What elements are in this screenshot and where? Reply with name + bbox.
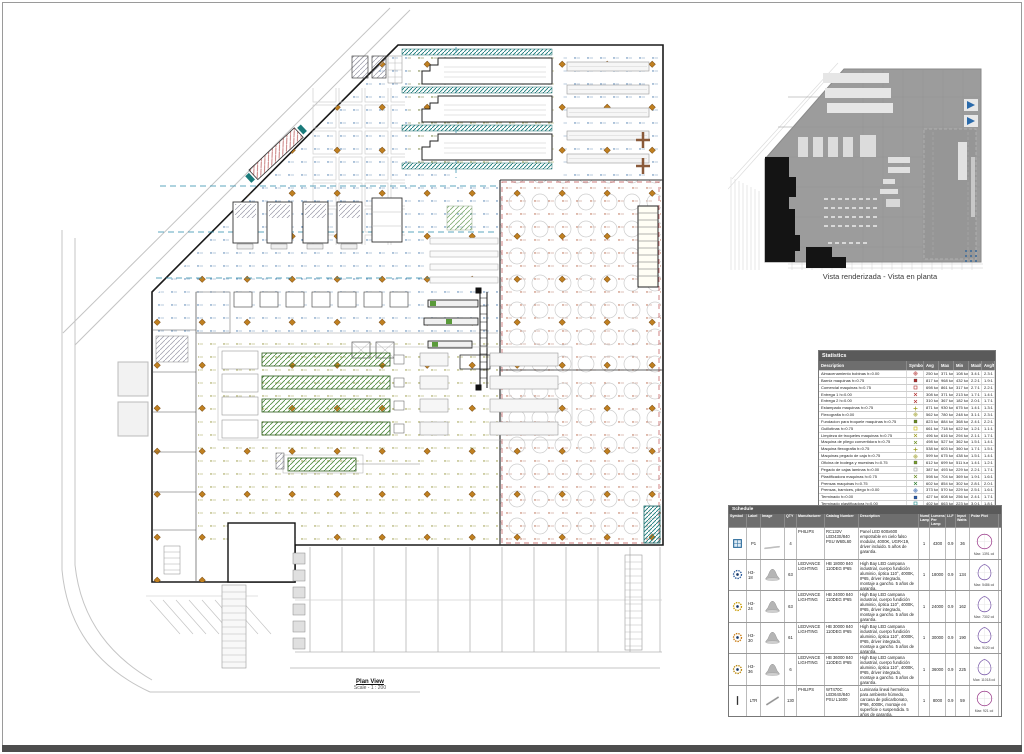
circle-cross-symbol-icon	[913, 371, 918, 376]
polar-plot	[974, 594, 995, 615]
polar-max-label: Max: 921 cd	[975, 709, 993, 713]
stat-description: Prensas maquinas h=0.75	[819, 481, 907, 487]
luminaire-image	[761, 591, 785, 622]
schedule-rows: P14PHILIPSRC132V LED43S/840 PSU W60L60Pa…	[729, 527, 1001, 716]
statistics-row: Fundacion para troquele maquinas h=0.758…	[819, 418, 995, 425]
render-storage-zone	[924, 129, 976, 259]
luminaire-manufacturer: PHILIPS	[797, 686, 825, 717]
stat-avg: 661 lux	[924, 426, 939, 432]
stat-avgmin: 1.9:1	[982, 378, 995, 384]
luminaire-llf: 0.9	[946, 528, 956, 559]
stat-avg: 538 lux	[924, 446, 939, 452]
stat-min: 622 lux	[954, 426, 969, 432]
luminaire-description: Panel LED 600x600 empotrable en cielo fa…	[859, 528, 919, 559]
luminaire-schedule-table: Schedule SymbolLabelImageQTYManufacturer…	[728, 505, 1002, 717]
luminaire-qty: 6	[785, 654, 797, 685]
stat-avg: 498 lux	[924, 439, 939, 445]
stat-max: 930 lux	[939, 405, 954, 411]
schedule-header-cell: Input Watts	[956, 514, 970, 527]
luminaire-watts: 36	[956, 528, 970, 559]
stat-avgmin: 1.4:1	[982, 392, 995, 398]
luminaire-lamps: 1	[919, 591, 930, 622]
circle-dot-symbol-icon	[732, 569, 743, 580]
schedule-row: H3-3061LEDVANCE LIGHTINGHB 30000 840 110…	[729, 622, 1001, 654]
stat-avgmin: 1.7:1	[982, 494, 995, 500]
stat-description: Terminado h=0.00	[819, 494, 907, 500]
stat-min: 438 lux	[954, 453, 969, 459]
stat-min: 182 lux	[954, 398, 969, 404]
luminaire-lamps: 1	[919, 654, 930, 685]
strip-image	[762, 693, 783, 708]
x-symbol-icon	[913, 481, 918, 486]
circle-dot-symbol-icon	[732, 664, 743, 675]
stat-symbol	[907, 494, 924, 500]
polar-plot	[974, 625, 995, 646]
luminaire-watts: 225	[956, 654, 970, 685]
luminaire-catalog: HB 36000 840 110DEG IP65	[825, 654, 859, 685]
luminaire-symbol	[729, 623, 747, 654]
stat-max: 968 lux	[939, 378, 954, 384]
statistics-row: Barniz maquinas h=0.75817 lux968 lux432 …	[819, 377, 995, 384]
luminaire-image	[761, 560, 785, 591]
stat-avgmin: 1.6:1	[982, 487, 995, 493]
luminaire-label: H3-30	[747, 623, 761, 654]
luminaire-llf: 0.9	[946, 623, 956, 654]
luminaire-manufacturer: LEDVANCE LIGHTING	[797, 591, 825, 622]
stat-avg: 698 lux	[924, 385, 939, 391]
square-symbol-icon	[913, 378, 918, 383]
circle-cross-symbol-icon	[913, 412, 918, 417]
luminaire-manufacturer: LEDVANCE LIGHTING	[797, 560, 825, 591]
stat-symbol	[907, 412, 924, 418]
luminaire-symbol	[729, 528, 747, 559]
luminaire-qty: 61	[785, 623, 797, 654]
plus-symbol-icon	[913, 447, 918, 452]
luminaire-catalog: HB 18000 840 110DEG IP65	[825, 560, 859, 591]
luminaire-description: High Bay LED campana industrial, cuerpo …	[859, 560, 919, 591]
luminaire-manufacturer: LEDVANCE LIGHTING	[797, 654, 825, 685]
luminaire-lamps: 1	[919, 560, 930, 591]
stat-avgmin: 1.6:1	[982, 474, 995, 480]
schedule-header-cell: LLF	[946, 514, 956, 527]
circle-dot-symbol-icon	[732, 601, 743, 612]
stat-maxmin: 1.7:1	[969, 446, 982, 452]
stat-avg: 602 lux	[924, 481, 939, 487]
luminaire-qty: 130	[785, 686, 797, 717]
stat-min: 229 lux	[954, 487, 969, 493]
stat-min: 229 lux	[954, 467, 969, 473]
stat-max: 854 lux	[939, 481, 954, 487]
luminaire-lamps: 1	[919, 623, 930, 654]
stat-min: 360 lux	[954, 446, 969, 452]
stat-max: 675 lux	[939, 453, 954, 459]
luminaire-image	[761, 686, 785, 717]
luminaire-symbol	[729, 560, 747, 591]
statistics-header-cell: Max	[939, 361, 954, 370]
stat-avgmin: 1.5:1	[982, 446, 995, 452]
panel-symbol-icon	[732, 538, 743, 549]
statistics-row: Almacenamiento bobinas h=0.00250 lux371 …	[819, 370, 995, 377]
stat-min: 675 lux	[954, 405, 969, 411]
luminaire-qty: 63	[785, 560, 797, 591]
stat-description: Maquina flexografia h=0.75	[819, 446, 907, 452]
stat-max: 570 lux	[939, 487, 954, 493]
square-symbol-icon	[913, 460, 918, 465]
stat-avg: 387 lux	[924, 467, 939, 473]
luminaire-lumens: 24000	[930, 591, 946, 622]
statistics-row: Entrega 1 h=0.00308 lux371 lux213 lux1.7…	[819, 391, 995, 398]
stat-maxmin: 2.1:1	[969, 433, 982, 439]
stat-description: Flexografia h=0.00	[819, 412, 907, 418]
luminaire-label: H3-18	[747, 560, 761, 591]
stat-symbol	[907, 426, 924, 432]
bar-symbol-icon	[732, 695, 743, 706]
stat-max: 371 lux	[939, 392, 954, 398]
highbay-image	[762, 567, 783, 582]
schedule-header-cell: Symbol	[729, 514, 747, 527]
luminaire-image	[761, 654, 785, 685]
luminaire-catalog: WT470C LED64S/840 PSU L1600	[825, 686, 859, 717]
schedule-header-cell: Polar Plot	[970, 514, 999, 527]
stat-maxmin: 1.5:1	[969, 453, 982, 459]
stat-avg: 871 lux	[924, 405, 939, 411]
stat-description: Barniz maquinas h=0.75	[819, 378, 907, 384]
plan-scale: Scale - 1 : 200	[300, 685, 440, 691]
loading-dock	[295, 547, 662, 652]
statistics-row: Estampado maquinas h=0.75871 lux930 lux6…	[819, 404, 995, 411]
statistics-row: Plastificadora maquinas h=0.75598 lux704…	[819, 473, 995, 480]
stat-max: 884 lux	[939, 419, 954, 425]
square-symbol-icon	[913, 495, 918, 500]
stat-avgmin: 1.4:1	[982, 453, 995, 459]
polar-max-label: Max: 5486 cd	[974, 583, 994, 587]
circle-cross-symbol-icon	[913, 488, 918, 493]
stat-maxmin: 1.2:1	[969, 426, 982, 432]
stat-max: 367 lux	[939, 398, 954, 404]
schedule-header-cell: Label	[747, 514, 761, 527]
luminaire-image	[761, 623, 785, 654]
stat-avgmin: 1.7:1	[982, 398, 995, 404]
stat-avg: 427 lux	[924, 494, 939, 500]
x-symbol-icon	[913, 392, 918, 397]
luminaire-polar: Max: 7302 cd	[970, 591, 999, 622]
luminaire-polar: Max: 921 cd	[970, 686, 999, 717]
stat-max: 493 lux	[939, 467, 954, 473]
stat-avg: 562 lux	[924, 412, 939, 418]
luminaire-polar: Max: 9120 cd	[970, 623, 999, 654]
x-symbol-icon	[913, 440, 918, 445]
stat-maxmin: 1.5:1	[969, 439, 982, 445]
stat-avgmin: 1.7:1	[982, 467, 995, 473]
luminaire-watts: 162	[956, 591, 970, 622]
stat-symbol	[907, 481, 924, 487]
stat-max: 699 lux	[939, 460, 954, 466]
mid-left-machines	[233, 198, 402, 249]
stat-avgmin: 1.7:1	[982, 433, 995, 439]
luminaire-label: LTR	[747, 686, 761, 717]
stat-symbol	[907, 433, 924, 439]
stat-min: 294 lux	[954, 433, 969, 439]
luminaire-image	[761, 528, 785, 559]
luminaire-qty: 63	[785, 591, 797, 622]
panel-image	[762, 536, 783, 551]
polar-plot	[974, 562, 995, 583]
statistics-row: Limpieza de troqueles maquinas h=0.75496…	[819, 432, 995, 439]
highbay-image	[762, 630, 783, 645]
schedule-row: H3-1863LEDVANCE LIGHTINGHB 18000 840 110…	[729, 559, 1001, 591]
plan-title-block: Plan View Scale - 1 : 200	[300, 679, 440, 691]
stat-description: Prensas, barnices, pliego h=0.00	[819, 487, 907, 493]
square-open-symbol-icon	[913, 426, 918, 431]
stat-max: 371 lux	[939, 371, 954, 377]
plus-symbol-icon	[913, 406, 918, 411]
rendered-view-caption: Vista renderizada - Vista en planta	[785, 272, 975, 281]
schedule-header: SymbolLabelImageQTYManufacturerCatalog N…	[729, 514, 1001, 527]
schedule-title: Schedule	[729, 506, 1001, 514]
stat-maxmin: 2.8:1	[969, 481, 982, 487]
stat-avg: 817 lux	[924, 378, 939, 384]
stat-avg: 373 lux	[924, 487, 939, 493]
schedule-header-cell: Number Lamps	[919, 514, 930, 527]
stat-symbol	[907, 446, 924, 452]
stat-maxmin: 2.4:1	[969, 494, 982, 500]
luminaire-catalog: HB 24000 840 110DEG IP65	[825, 591, 859, 622]
luminaire-polar: Max: 5486 cd	[970, 560, 999, 591]
statistics-row: Maquinas pegado de caja h=0.75599 lux675…	[819, 452, 995, 459]
x-symbol-icon	[913, 399, 918, 404]
stat-min: 256 lux	[954, 494, 969, 500]
rendered-view	[728, 57, 986, 270]
stat-description: Almacenamiento bobinas h=0.00	[819, 371, 907, 377]
stat-symbol	[907, 467, 924, 473]
luminaire-lumens: 4300	[930, 528, 946, 559]
square-open-symbol-icon	[913, 467, 918, 472]
stat-maxmin: 2.7:1	[969, 385, 982, 391]
stat-description: Entrega 2 h=0.00	[819, 398, 907, 404]
stat-min: 213 lux	[954, 392, 969, 398]
stat-description: Plastificadora maquinas h=0.75	[819, 474, 907, 480]
statistics-rows: Almacenamiento bobinas h=0.00250 lux371 …	[819, 370, 995, 521]
stat-maxmin: 1.7:1	[969, 392, 982, 398]
stat-avg: 599 lux	[924, 453, 939, 459]
stat-symbol	[907, 453, 924, 459]
stat-avgmin: 2.2:1	[982, 385, 995, 391]
statistics-row: Entrega 2 h=0.00310 lux367 lux182 lux2.0…	[819, 397, 995, 404]
square-open-symbol-icon	[913, 385, 918, 390]
schedule-header-cell: Description	[859, 514, 919, 527]
stat-symbol	[907, 405, 924, 411]
stat-min: 108 lux	[954, 371, 969, 377]
luminaire-lamps: 1	[919, 686, 930, 717]
luminaire-manufacturer: PHILIPS	[797, 528, 825, 559]
luminaire-watts: 134	[956, 560, 970, 591]
luminaire-label: H3-36	[747, 654, 761, 685]
statistics-header: DescriptionSymbolAvgMaxMinMax/MinAvg/Min	[819, 361, 995, 370]
statistics-row: Oficina de bodega y muestras h=0.75612 l…	[819, 459, 995, 466]
stat-max: 718 lux	[939, 426, 954, 432]
stat-avg: 308 lux	[924, 392, 939, 398]
stat-min: 248 lux	[954, 412, 969, 418]
stat-description: Entrega 1 h=0.00	[819, 392, 907, 398]
circle-cross-symbol-icon	[913, 454, 918, 459]
polar-max-label: Max: 11018 cd	[973, 678, 995, 682]
luminaire-symbol	[729, 591, 747, 622]
stat-description: Fundacion para troquele maquinas h=0.75	[819, 419, 907, 425]
schedule-header-cell: Lumens Per Lamp	[930, 514, 946, 527]
schedule-row: P14PHILIPSRC132V LED43S/840 PSU W60L60Pa…	[729, 527, 1001, 559]
stat-min: 369 lux	[954, 474, 969, 480]
statistics-row: Maquina flexografia h=0.75538 lux603 lux…	[819, 445, 995, 452]
stat-avg: 823 lux	[924, 419, 939, 425]
stat-max: 603 lux	[939, 446, 954, 452]
stat-description: Maquina de pliego convertidora h=0.75	[819, 439, 907, 445]
luminaire-label: H3-24	[747, 591, 761, 622]
statistics-row: Flexografia h=0.00562 lux780 lux248 lux3…	[819, 411, 995, 418]
statistics-row: Prensas maquinas h=0.75602 lux854 lux302…	[819, 480, 995, 487]
stat-symbol	[907, 392, 924, 398]
stat-description: Limpieza de troqueles maquinas h=0.75	[819, 433, 907, 439]
luminaire-catalog: RC132V LED43S/840 PSU W60L60	[825, 528, 859, 559]
schedule-header-cell: QTY	[785, 514, 797, 527]
luminaire-llf: 0.9	[946, 654, 956, 685]
stat-min: 368 lux	[954, 419, 969, 425]
stat-max: 704 lux	[939, 474, 954, 480]
polar-max-label: Max: 9120 cd	[974, 646, 994, 650]
stat-symbol	[907, 487, 924, 493]
stat-symbol	[907, 460, 924, 466]
luminaire-description: High Bay LED campana industrial, cuerpo …	[859, 623, 919, 654]
luminaire-lumens: 8000	[930, 686, 946, 717]
statistics-row: Pegado de cajas laminas h=0.00387 lux493…	[819, 466, 995, 473]
stat-symbol	[907, 439, 924, 445]
stat-symbol	[907, 398, 924, 404]
luminaire-polar: Max: 1391 cd	[970, 528, 999, 559]
stat-maxmin: 1.9:1	[969, 474, 982, 480]
luminaire-catalog: HB 30000 840 110DEG IP65	[825, 623, 859, 654]
stat-avgmin: 2.0:1	[982, 481, 995, 487]
stat-maxmin: 2.4:1	[969, 419, 982, 425]
schedule-header-cell: Catalog Number	[825, 514, 859, 527]
polar-plot	[974, 531, 995, 552]
stat-max: 861 lux	[939, 385, 954, 391]
statistics-row: Guillotinas h=0.75661 lux718 lux622 lux1…	[819, 425, 995, 432]
polar-max-label: Max: 7302 cd	[974, 615, 994, 619]
stat-min: 317 lux	[954, 385, 969, 391]
stat-avg: 310 lux	[924, 398, 939, 404]
stat-avgmin: 2.3:1	[982, 412, 995, 418]
circle-dot-symbol-icon	[732, 632, 743, 643]
stat-avg: 612 lux	[924, 460, 939, 466]
stat-symbol	[907, 378, 924, 384]
luminaire-description: High Bay LED campana industrial, cuerpo …	[859, 654, 919, 685]
stat-min: 302 lux	[954, 481, 969, 487]
luminaire-llf: 0.9	[946, 686, 956, 717]
luminaire-label: P1	[747, 528, 761, 559]
stat-description: Oficina de bodega y muestras h=0.75	[819, 460, 907, 466]
stat-description: Guillotinas h=0.75	[819, 426, 907, 432]
statistics-row: Terminado h=0.00427 lux608 lux256 lux2.4…	[819, 493, 995, 500]
luminaire-polar: Max: 11018 cd	[970, 654, 999, 685]
floor-plan	[40, 0, 700, 710]
highbay-image	[762, 599, 783, 614]
stat-avg: 250 lux	[924, 371, 939, 377]
stat-description: Estampado maquinas h=0.75	[819, 405, 907, 411]
schedule-header-cell: Image	[761, 514, 785, 527]
statistics-header-cell: Avg/Min	[982, 361, 995, 370]
stat-maxmin: 2.5:1	[969, 487, 982, 493]
luminaire-lumens: 36000	[930, 654, 946, 685]
polar-plot	[974, 657, 995, 678]
luminaire-qty: 4	[785, 528, 797, 559]
stat-description: Maquinas pegado de caja h=0.75	[819, 453, 907, 459]
stat-maxmin: 2.0:1	[969, 398, 982, 404]
stat-description: Pegado de cajas laminas h=0.00	[819, 467, 907, 473]
luminaire-manufacturer: LEDVANCE LIGHTING	[797, 623, 825, 654]
statistics-header-cell: Description	[819, 361, 907, 370]
stat-avgmin: 2.3:1	[982, 371, 995, 377]
luminaire-lamps: 1	[919, 528, 930, 559]
luminaire-lumens: 18000	[930, 560, 946, 591]
luminaire-description: High Bay LED campana industrial, cuerpo …	[859, 591, 919, 622]
hatched-office	[447, 206, 472, 230]
luminaire-symbol	[729, 654, 747, 685]
stat-avgmin: 2.2:1	[982, 419, 995, 425]
luminaire-lumens: 30000	[930, 623, 946, 654]
schedule-header-cell: Manufacturer	[797, 514, 825, 527]
stat-symbol	[907, 474, 924, 480]
highbay-image	[762, 662, 783, 677]
polar-plot	[974, 688, 995, 709]
statistics-row: Comercial maquinas h=0.75698 lux861 lux3…	[819, 384, 995, 391]
stat-maxmin: 3.4:1	[969, 371, 982, 377]
x-symbol-icon	[913, 474, 918, 479]
stat-max: 608 lux	[939, 494, 954, 500]
statistics-table: Statistics DescriptionSymbolAvgMaxMinMax…	[818, 350, 996, 522]
statistics-header-cell: Symbol	[907, 361, 924, 370]
stat-min: 511 lux	[954, 460, 969, 466]
stat-max: 780 lux	[939, 412, 954, 418]
stat-maxmin: 1.4:1	[969, 460, 982, 466]
luminaire-watts: 59	[956, 686, 970, 717]
stat-symbol	[907, 385, 924, 391]
polar-max-label: Max: 1391 cd	[974, 552, 994, 556]
schedule-row: LTR130PHILIPSWT470C LED64S/840 PSU L1600…	[729, 685, 1001, 717]
stat-maxmin: 2.2:1	[969, 467, 982, 473]
square-symbol-icon	[913, 419, 918, 424]
x-symbol-icon	[913, 433, 918, 438]
stat-symbol	[907, 419, 924, 425]
stat-avg: 598 lux	[924, 474, 939, 480]
bottom-left-room	[228, 523, 295, 582]
luminaire-symbol	[729, 686, 747, 717]
stat-avgmin: 1.4:1	[982, 439, 995, 445]
statistics-title: Statistics	[819, 351, 995, 361]
stat-min: 432 lux	[954, 378, 969, 384]
statistics-row: Maquina de pliego convertidora h=0.75498…	[819, 438, 995, 445]
luminaire-llf: 0.9	[946, 560, 956, 591]
statistics-header-cell: Min	[954, 361, 969, 370]
stat-min: 362 lux	[954, 439, 969, 445]
schedule-row: H3-366LEDVANCE LIGHTINGHB 36000 840 110D…	[729, 653, 1001, 685]
stat-avgmin: 1.3:1	[982, 405, 995, 411]
stat-avgmin: 1.1:1	[982, 426, 995, 432]
stat-avg: 496 lux	[924, 433, 939, 439]
statistics-row: Prensas, barnices, pliego h=0.00373 lux5…	[819, 486, 995, 493]
stat-symbol	[907, 371, 924, 377]
stat-description: Comercial maquinas h=0.75	[819, 385, 907, 391]
sheet-bottom-band	[2, 745, 1022, 752]
stat-max: 616 lux	[939, 433, 954, 439]
